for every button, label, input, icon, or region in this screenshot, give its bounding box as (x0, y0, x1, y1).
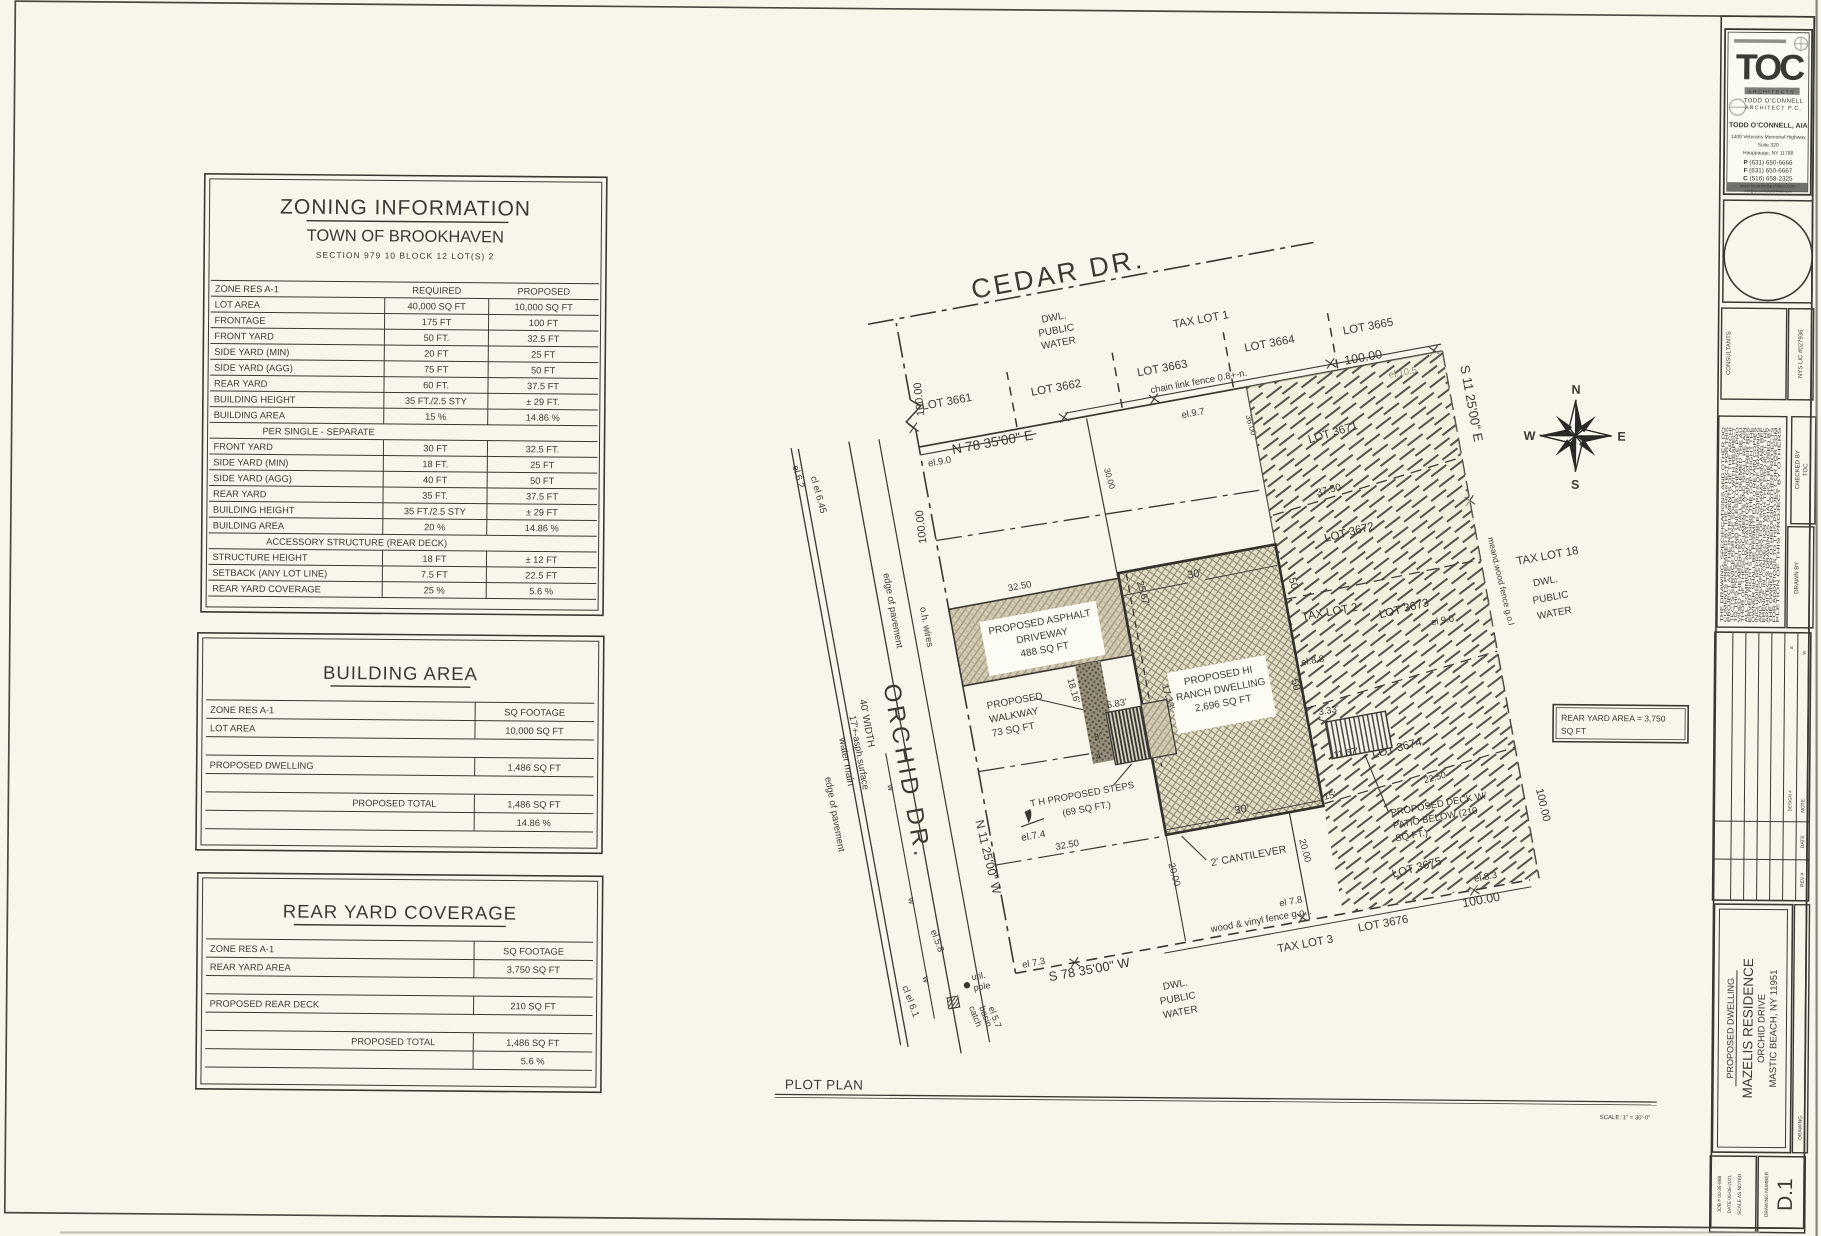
svg-text:15': 15' (1323, 790, 1337, 803)
svg-text:SIDE YARD (AGG): SIDE YARD (AGG) (213, 473, 292, 484)
svg-text:DATE 06-06-2021: DATE 06-06-2021 (1727, 1175, 1733, 1214)
svg-text:30': 30' (1186, 567, 1202, 581)
svg-text:info@toconnellarchitect.com: info@toconnellarchitect.com (1744, 189, 1792, 193)
svg-text:ZONE RES A-1: ZONE RES A-1 (210, 705, 274, 716)
svg-text:PLOT PLAN: PLOT PLAN (785, 1077, 864, 1093)
svg-text:50 FT: 50 FT (531, 365, 556, 375)
svg-text:BUILDING AREA: BUILDING AREA (323, 662, 478, 684)
svg-text:60 FT.: 60 FT. (423, 380, 449, 390)
svg-text:JOB # 00-35-888: JOB # 00-35-888 (1717, 1175, 1723, 1212)
svg-text:DRAWN BY: DRAWN BY (1794, 562, 1800, 594)
svg-text:CHECKED BY: CHECKED BY (1795, 450, 1801, 489)
svg-text:22.5 FT: 22.5 FT (525, 570, 557, 580)
svg-text:30 FT: 30 FT (423, 443, 448, 453)
svg-text:D.1: D.1 (1774, 1178, 1797, 1211)
svg-text:NOTE: NOTE (1800, 798, 1806, 813)
svg-text:C (516) 658-2325: C (516) 658-2325 (1743, 175, 1793, 182)
svg-text:BUILDING AREA: BUILDING AREA (213, 520, 285, 531)
svg-text:MASTIC BEACH, NY 11951: MASTIC BEACH, NY 11951 (1768, 970, 1780, 1088)
svg-text:W: W (1524, 429, 1536, 443)
svg-text:SIDE YARD (MIN): SIDE YARD (MIN) (213, 457, 288, 468)
svg-text:20 FT: 20 FT (424, 349, 449, 359)
svg-text:25 %: 25 % (424, 585, 445, 595)
svg-text:ORCHID DRIVE: ORCHID DRIVE (1756, 994, 1768, 1063)
svg-text:REAR YARD AREA: REAR YARD AREA (210, 962, 292, 973)
svg-text:14.86 %: 14.86 % (526, 413, 560, 423)
svg-text:PER SINGLE - SEPARATE: PER SINGLE - SEPARATE (262, 426, 374, 437)
svg-text:PROPOSED TOTAL: PROPOSED TOTAL (352, 798, 436, 809)
svg-text:SQ FOOTAGE: SQ FOOTAGE (503, 946, 564, 957)
svg-text:ZONE RES A-1: ZONE RES A-1 (210, 944, 274, 955)
svg-text:DESIGN #: DESIGN # (1787, 790, 1792, 812)
svg-text:± 12 FT: ± 12 FT (525, 555, 557, 565)
svg-text:35 FT.: 35 FT. (422, 491, 448, 501)
svg-text:FRONT YARD: FRONT YARD (213, 442, 273, 453)
svg-text:REAR YARD AREA = 3,750: REAR YARD AREA = 3,750 (1561, 713, 1666, 724)
svg-text:32.5 FT.: 32.5 FT. (526, 444, 560, 454)
svg-text:BUILDING AREA: BUILDING AREA (214, 410, 286, 421)
svg-text:10,000 SQ FT: 10,000 SQ FT (505, 726, 564, 737)
svg-text:50 FT.: 50 FT. (423, 333, 449, 343)
svg-text:REQUIRED: REQUIRED (412, 285, 461, 295)
svg-text:TOWN OF BROOKHAVEN: TOWN OF BROOKHAVEN (307, 227, 505, 247)
svg-text:REV #: REV # (1800, 872, 1806, 887)
svg-text:REAR YARD COVERAGE: REAR YARD COVERAGE (283, 901, 517, 924)
svg-text:35 FT./2.5 STY: 35 FT./2.5 STY (404, 506, 466, 517)
svg-text:SQ FT: SQ FT (1561, 726, 1586, 736)
svg-text:STRUCTURE HEIGHT: STRUCTURE HEIGHT (212, 552, 307, 563)
svg-text:PROPOSED: PROPOSED (517, 286, 570, 296)
svg-text:ZONE RES A-1: ZONE RES A-1 (215, 284, 279, 295)
svg-text:18 FT: 18 FT (422, 554, 447, 564)
svg-text:SCALE AS NOTED: SCALE AS NOTED (1737, 1173, 1743, 1215)
svg-text:50 FT: 50 FT (530, 476, 555, 486)
svg-text:SIDE YARD (MIN): SIDE YARD (MIN) (214, 347, 289, 358)
svg-text:7.5 FT: 7.5 FT (421, 570, 448, 580)
svg-text:SECTION 979 10 BLOCK 12 LOT: SECTION 979 10 BLOCK 12 LOT(S) 2 (316, 250, 495, 262)
svg-text:14.86 %: 14.86 % (525, 523, 559, 533)
svg-text:BUILDING HEIGHT: BUILDING HEIGHT (214, 394, 296, 405)
svg-text:35 FT./2.5 STY: 35 FT./2.5 STY (405, 396, 467, 407)
svg-text:Hauppauge, NY 11788: Hauppauge, NY 11788 (1743, 150, 1794, 156)
svg-text:BUILDING HEIGHT: BUILDING HEIGHT (213, 505, 295, 516)
svg-text:DATE: DATE (1800, 835, 1806, 849)
svg-text:ARCHITECTS: ARCHITECTS (1748, 89, 1795, 95)
svg-text:PROPOSED DWELLING: PROPOSED DWELLING (1725, 978, 1736, 1079)
svg-text:S: S (1571, 478, 1579, 492)
svg-text:MAZELIS RESIDENCE: MAZELIS RESIDENCE (1740, 958, 1756, 1098)
svg-text:TODD O’CONNELL, AIA: TODD O’CONNELL, AIA (1729, 122, 1808, 130)
svg-text:FRONT YARD: FRONT YARD (214, 331, 274, 342)
svg-text:14.86 %: 14.86 % (517, 818, 551, 828)
svg-text:20 %: 20 % (424, 522, 445, 532)
svg-text:ARCHITECT P.C.: ARCHITECT P.C. (1745, 105, 1802, 111)
svg-text:10,000 SQ FT: 10,000 SQ FT (514, 302, 573, 313)
svg-text:DRAWING NUMBER: DRAWING NUMBER (1764, 1171, 1770, 1217)
svg-text:1400 Veterans Memorial Highway: 1400 Veterans Memorial Highway (1731, 134, 1806, 141)
svg-text:100 FT: 100 FT (529, 318, 559, 328)
svg-text:1,486 SQ FT: 1,486 SQ FT (508, 763, 562, 773)
svg-text:40 FT: 40 FT (423, 475, 448, 485)
svg-text:REAR YARD COVERAGE: REAR YARD COVERAGE (212, 584, 321, 595)
svg-text:3,750 SQ FT: 3,750 SQ FT (507, 965, 561, 975)
svg-text:30': 30' (1234, 803, 1250, 817)
svg-text:TODD O’CONNELL: TODD O’CONNELL (1744, 98, 1804, 105)
svg-text:ZONING INFORMATION: ZONING INFORMATION (280, 195, 531, 220)
svg-text:1,486 SQ FT: 1,486 SQ FT (507, 799, 561, 809)
svg-text:25 FT: 25 FT (530, 460, 555, 470)
svg-text:1,486 SQ FT: 1,486 SQ FT (506, 1038, 560, 1048)
svg-text:LOT AREA: LOT AREA (215, 300, 261, 310)
svg-text:± 29 FT.: ± 29 FT. (526, 397, 560, 407)
svg-text:SETBACK (ANY LOT LINE): SETBACK (ANY LOT LINE) (212, 568, 327, 579)
svg-text:40,000 SQ FT: 40,000 SQ FT (407, 301, 466, 312)
svg-text:SIDE YARD (AGG): SIDE YARD (AGG) (214, 363, 293, 374)
svg-text:25 FT: 25 FT (531, 350, 556, 360)
svg-text:32.5 FT: 32.5 FT (527, 334, 559, 344)
svg-text:TOC: TOC (1736, 46, 1806, 88)
svg-text:15 %: 15 % (425, 412, 446, 422)
svg-text:www.toconnellarchitect.com: www.toconnellarchitect.com (1740, 183, 1796, 188)
svg-text:175 FT: 175 FT (422, 317, 452, 327)
svg-text:ACCESSORY STRUCTURE (REAR DECK: ACCESSORY STRUCTURE (REAR DECK) (266, 537, 447, 549)
svg-text:SCALE: 1" = 30'-0": SCALE: 1" = 30'-0" (1600, 1115, 1651, 1121)
svg-text:FRONTAGE: FRONTAGE (215, 315, 266, 325)
svg-text:N: N (1571, 383, 1580, 397)
svg-text:210 SQ FT: 210 SQ FT (510, 1001, 556, 1011)
svg-text:± 29 FT: ± 29 FT (526, 507, 558, 517)
svg-text:SQ FOOTAGE: SQ FOOTAGE (504, 707, 565, 718)
svg-text:P (631) 650-6666: P (631) 650-6666 (1743, 159, 1793, 166)
svg-text:PROPOSED DWELLING: PROPOSED DWELLING (210, 760, 314, 771)
svg-text:5.6 %: 5.6 % (521, 1056, 545, 1066)
svg-text:PROPOSED REAR DECK: PROPOSED REAR DECK (210, 999, 320, 1010)
svg-text:a: a (1789, 646, 1795, 649)
svg-text:37.5 FT: 37.5 FT (526, 492, 558, 502)
svg-text:18 FT.: 18 FT. (422, 459, 448, 469)
svg-text:LOT AREA: LOT AREA (210, 723, 256, 733)
svg-text:37.5 FT: 37.5 FT (527, 381, 559, 391)
svg-text:CONSULTANTS: CONSULTANTS (1726, 331, 1732, 375)
svg-text:5.6 %: 5.6 % (529, 586, 553, 596)
svg-text:w: w (1802, 651, 1808, 655)
svg-text:TOC: TOC (1803, 463, 1809, 476)
svg-text:NYS LIC #027936: NYS LIC #027936 (1798, 329, 1804, 378)
svg-text:Suite 320: Suite 320 (1758, 142, 1779, 148)
svg-text:DRAWING: DRAWING (1797, 1116, 1803, 1140)
svg-text:REAR YARD: REAR YARD (213, 489, 267, 499)
svg-text:75 FT: 75 FT (424, 364, 449, 374)
svg-text:E: E (1617, 430, 1625, 444)
svg-text:PROPOSED TOTAL: PROPOSED TOTAL (351, 1036, 435, 1047)
svg-text:F (631) 650-6667: F (631) 650-6667 (1744, 167, 1793, 174)
svg-text:REAR YARD: REAR YARD (214, 378, 268, 388)
